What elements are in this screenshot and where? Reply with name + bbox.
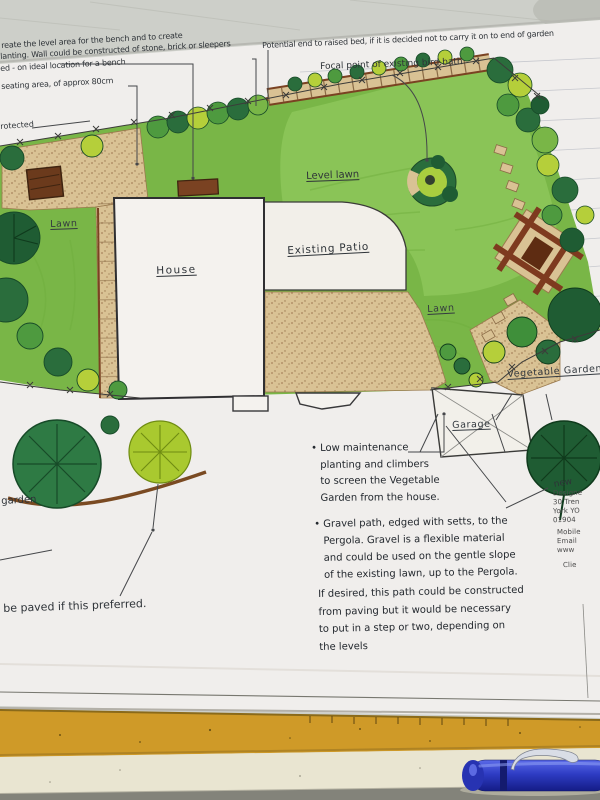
title-block-line: Email (557, 537, 577, 545)
title-block-line: www (557, 546, 575, 554)
title-block-line: York YO (553, 507, 580, 515)
garden-plan-photo: reate the level area for the bench and t… (0, 0, 600, 800)
label-lawn-right: Lawn (427, 303, 455, 315)
label-lawn-left: Lawn (50, 218, 78, 230)
title-block-line: Designe (553, 489, 582, 498)
potential-end-note: Potential end to raised bed, if it is de… (262, 29, 554, 50)
label-house: House (156, 264, 197, 277)
note-gravel-path: • Gravel path, edged with setts, to the … (314, 512, 518, 584)
note-seating-area: seating area, of approx 80cm (1, 76, 113, 91)
focal-point-note: Focal point of existing bird bath (320, 57, 463, 72)
title-block-line: 01904 (553, 516, 576, 524)
protected-fragment: rotected (0, 120, 34, 131)
label-level-lawn: Level lawn (306, 169, 359, 182)
label-garage: Garage (452, 419, 491, 431)
new-fragment: new (553, 477, 573, 490)
garden-fragment: garden (1, 494, 37, 507)
title-block-line: Mobile (557, 528, 581, 536)
title-block-line: 30 Tren (553, 498, 580, 506)
note-paving-alternative: If desired, this path could be construct… (318, 582, 525, 656)
title-block-line: Clie (563, 561, 577, 569)
note-paved-fragment: be paved if this preferred. (3, 597, 147, 615)
label-existing-patio: Existing Patio (287, 241, 369, 257)
note-low-maintenance: • Low maintenance planting and climbers … (311, 440, 440, 507)
label-vegetable-garden: Vegetable Garden (507, 363, 600, 380)
text-layer: reate the level area for the bench and t… (0, 0, 600, 800)
